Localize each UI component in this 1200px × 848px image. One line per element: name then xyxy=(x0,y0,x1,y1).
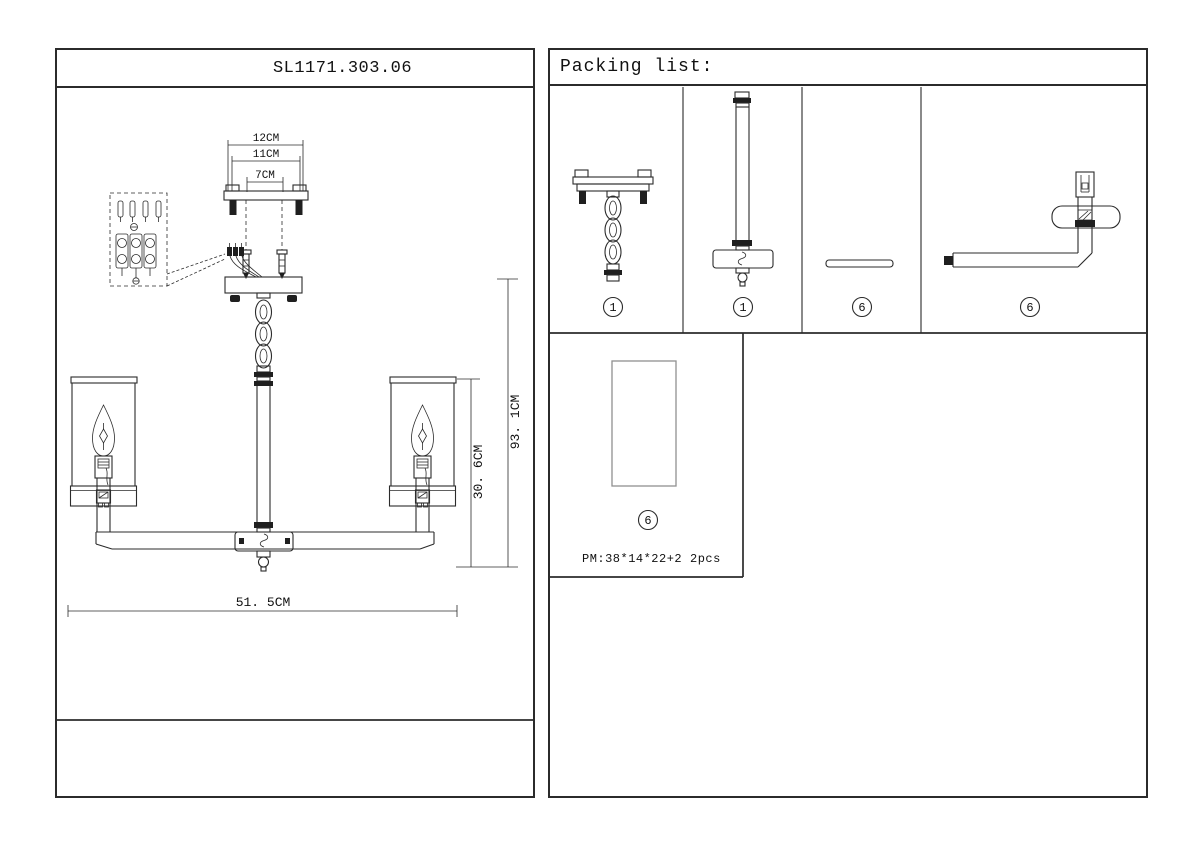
dim-7cm: 7CM xyxy=(255,170,275,182)
model-number: SL1171.303.06 xyxy=(273,59,412,78)
dim-30-6cm: 30. 6CM xyxy=(471,445,486,500)
fixture-drawing: 12CM 11CM 7CM xyxy=(57,88,533,796)
center-hub xyxy=(235,532,293,571)
hanging-chain xyxy=(256,300,272,368)
part-glass-shade: 6 PM:38*14*22+2 2pcs xyxy=(582,361,721,566)
terminal-block-detail xyxy=(110,193,225,286)
width-dimension: 51. 5CM xyxy=(68,595,457,617)
part-arm-socket: 6 xyxy=(944,172,1120,317)
blueprint-canvas: SL1171.303.06 12CM 11CM 7CM xyxy=(0,0,1200,848)
wall-anchor-right xyxy=(277,250,287,279)
part-number: 6 xyxy=(858,301,865,315)
packing-list-panel: Packing list: xyxy=(548,48,1148,798)
part-bracket-chain: 1 xyxy=(573,170,653,317)
part-number: 6 xyxy=(644,514,651,528)
bracket-dimensions: 12CM 11CM 7CM xyxy=(228,133,303,192)
packing-list-header: Packing list: xyxy=(550,50,1146,86)
packing-qty: 2pcs xyxy=(690,552,721,566)
dim-12cm: 12CM xyxy=(253,133,279,145)
height-dimensions: 30. 6CM 93. 1CM xyxy=(456,279,523,567)
dim-11cm: 11CM xyxy=(253,149,279,161)
title-row: SL1171.303.06 xyxy=(57,50,533,88)
lamp-right xyxy=(390,377,457,532)
part-flat-bar: 6 xyxy=(826,260,893,317)
center-rod xyxy=(254,366,273,532)
part-number: 6 xyxy=(1026,301,1033,315)
spec-sheet-panel: SL1171.303.06 12CM 11CM 7CM xyxy=(55,48,535,798)
dim-93-1cm: 93. 1CM xyxy=(508,395,523,450)
packing-list-title: Packing list: xyxy=(560,57,713,77)
ceiling-canopy xyxy=(225,277,302,302)
part-rod-hub: 1 xyxy=(713,92,773,317)
part-number: 1 xyxy=(609,301,616,315)
grid-lines xyxy=(550,87,1146,577)
dim-51-5cm: 51. 5CM xyxy=(236,595,291,610)
lamp-left xyxy=(71,377,138,532)
packing-material-spec: PM:38*14*22+2 xyxy=(582,552,682,566)
part-number: 1 xyxy=(739,301,746,315)
packing-list-grid: 1 1 6 xyxy=(550,86,1146,796)
